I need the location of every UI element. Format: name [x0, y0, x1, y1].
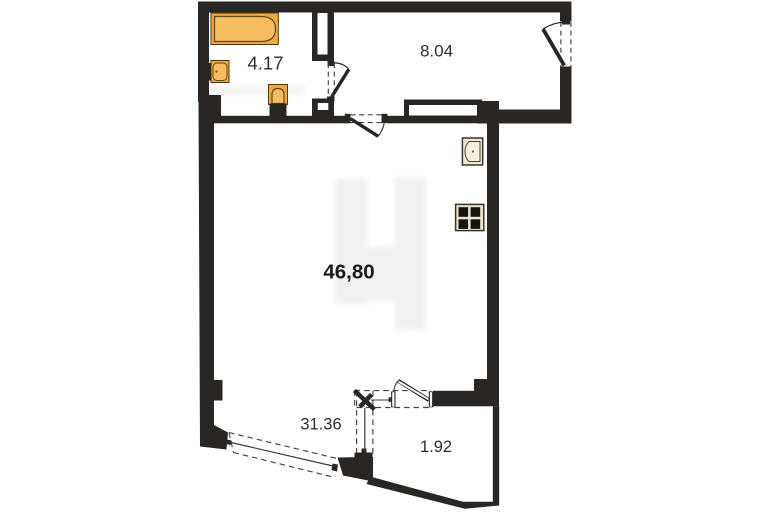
svg-text:4.17: 4.17: [247, 53, 283, 74]
svg-text:1.92: 1.92: [420, 438, 452, 456]
svg-text:46,80: 46,80: [323, 261, 374, 284]
svg-text:8.04: 8.04: [420, 42, 453, 61]
svg-text:31.36: 31.36: [300, 416, 341, 434]
